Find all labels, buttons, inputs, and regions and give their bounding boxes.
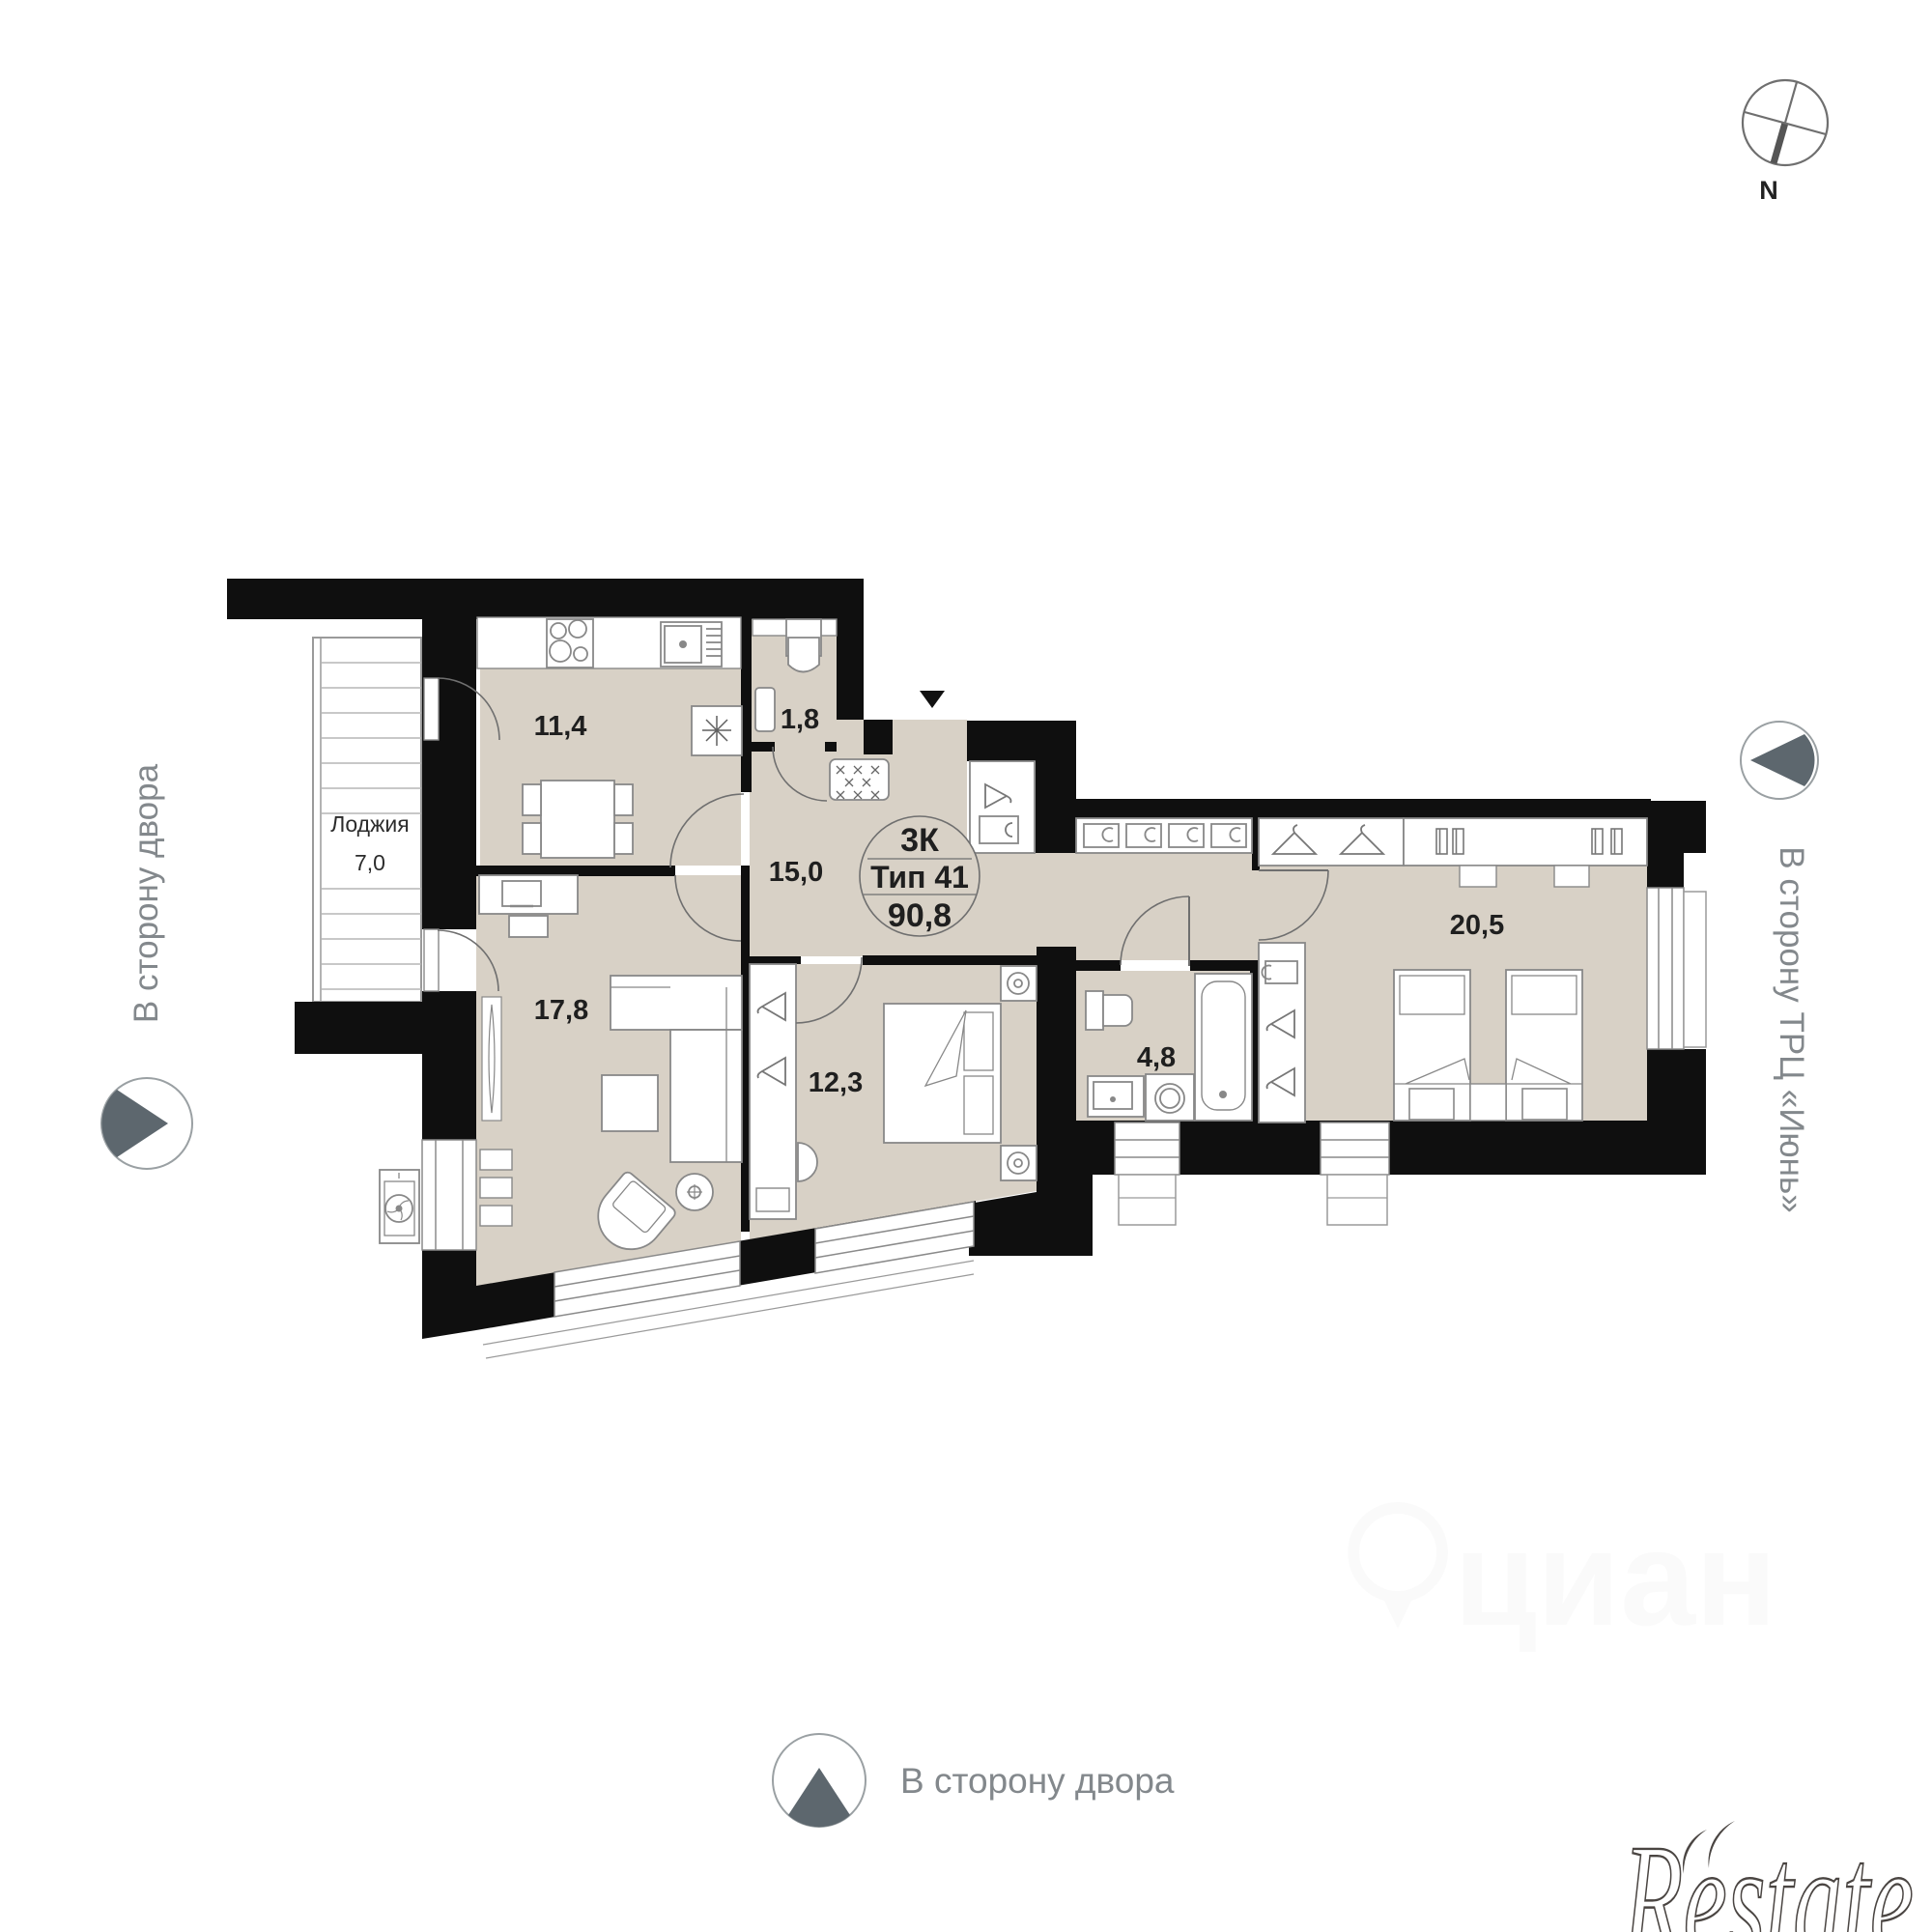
svg-text:17,8: 17,8 bbox=[534, 995, 588, 1026]
svg-text:В сторону ТРЦ «Июнь»: В сторону ТРЦ «Июнь» bbox=[1773, 846, 1810, 1212]
svg-text:11,4: 11,4 bbox=[534, 711, 587, 742]
svg-text:4,8: 4,8 bbox=[1137, 1042, 1176, 1073]
svg-text:12,3: 12,3 bbox=[809, 1067, 863, 1098]
svg-text:Лоджия: Лоджия bbox=[330, 811, 410, 837]
svg-text:В сторону двора: В сторону двора bbox=[900, 1761, 1175, 1801]
svg-text:20,5: 20,5 bbox=[1450, 910, 1504, 941]
svg-text:3К: 3К bbox=[900, 822, 939, 859]
svg-text:циан: циан bbox=[1454, 1502, 1777, 1654]
svg-text:Тип 41: Тип 41 bbox=[870, 860, 969, 895]
svg-text:90,8: 90,8 bbox=[888, 897, 952, 934]
svg-text:Restate: Restate bbox=[1622, 1811, 1914, 1932]
svg-text:В сторону двора: В сторону двора bbox=[128, 763, 165, 1023]
svg-text:1,8: 1,8 bbox=[781, 704, 819, 735]
svg-text:7,0: 7,0 bbox=[355, 850, 385, 875]
svg-text:15,0: 15,0 bbox=[769, 857, 823, 888]
svg-text:N: N bbox=[1759, 176, 1778, 205]
